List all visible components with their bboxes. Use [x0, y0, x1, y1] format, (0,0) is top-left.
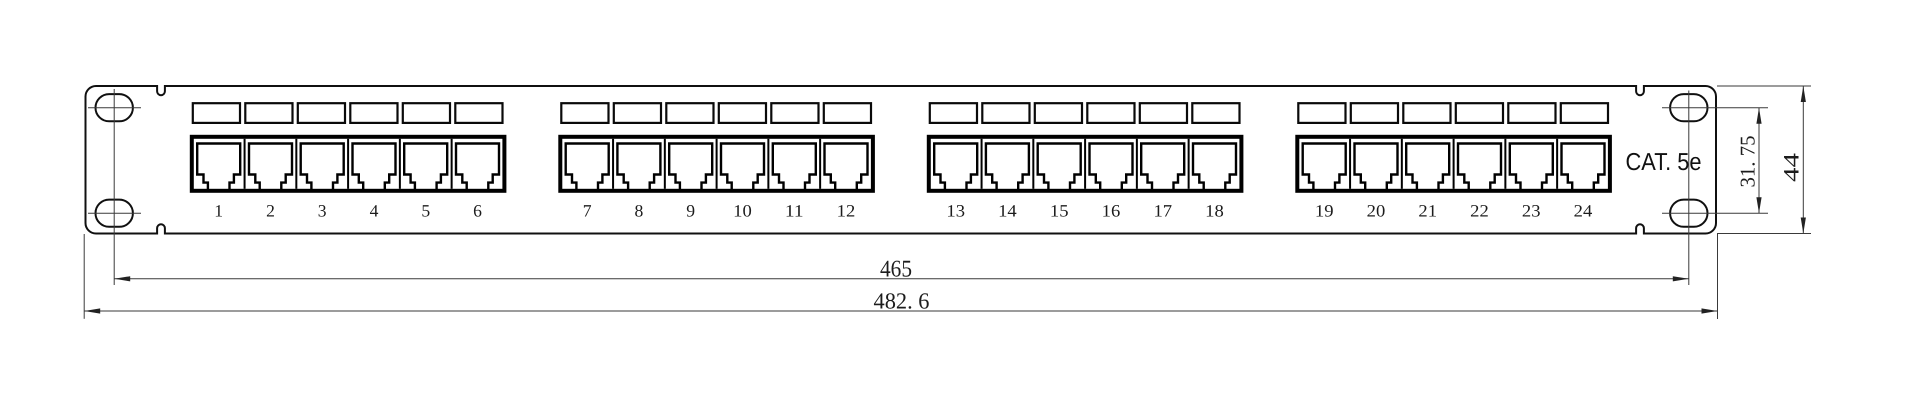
svg-text:18: 18	[1205, 202, 1224, 221]
svg-text:2: 2	[266, 202, 275, 221]
svg-text:8: 8	[635, 202, 644, 221]
svg-text:21: 21	[1418, 202, 1437, 221]
svg-text:4: 4	[370, 202, 379, 221]
svg-text:16: 16	[1102, 202, 1121, 221]
svg-text:9: 9	[686, 202, 695, 221]
svg-text:15: 15	[1050, 202, 1069, 221]
svg-text:5: 5	[421, 202, 430, 221]
svg-text:6: 6	[473, 202, 482, 221]
svg-text:11: 11	[785, 202, 804, 221]
svg-text:23: 23	[1522, 202, 1541, 221]
svg-text:14: 14	[998, 202, 1017, 221]
svg-text:3: 3	[318, 202, 327, 221]
svg-text:12: 12	[837, 202, 856, 221]
svg-text:19: 19	[1315, 202, 1334, 221]
svg-text:13: 13	[946, 202, 965, 221]
svg-text:482. 6: 482. 6	[874, 289, 930, 314]
svg-text:20: 20	[1367, 202, 1386, 221]
svg-text:17: 17	[1154, 202, 1173, 221]
svg-text:CAT. 5e: CAT. 5e	[1626, 149, 1702, 176]
svg-text:10: 10	[733, 202, 752, 221]
svg-text:465: 465	[880, 257, 912, 283]
svg-text:31. 75: 31. 75	[1736, 136, 1760, 188]
svg-text:7: 7	[583, 202, 592, 221]
svg-text:44: 44	[1779, 153, 1804, 182]
svg-text:24: 24	[1574, 202, 1593, 221]
svg-text:1: 1	[214, 202, 223, 221]
svg-text:22: 22	[1470, 202, 1489, 221]
